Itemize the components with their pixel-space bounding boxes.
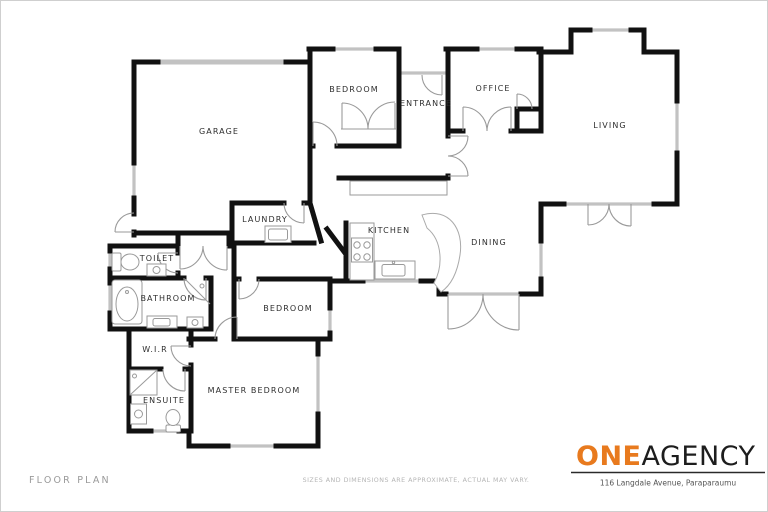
room-label-living: LIVING <box>593 121 626 130</box>
room-label-laundry: LAUNDRY <box>242 215 288 224</box>
footer: FLOOR PLAN SIZES AND DIMENSIONS ARE APPR… <box>29 441 765 488</box>
room-label-toilet: TOILET <box>139 254 175 263</box>
ensuite-vanity-fixture <box>131 404 147 424</box>
disclaimer-text: SIZES AND DIMENSIONS ARE APPROXIMATE, AC… <box>303 477 530 484</box>
laundry-tub-fixture <box>265 226 291 243</box>
bedroom-top-door <box>313 122 337 146</box>
toilet-vanity-fixture <box>147 264 166 276</box>
room-label-bathroom: BATHROOM <box>140 294 195 303</box>
dining-french-doors <box>448 294 519 330</box>
room-label-ensuite: ENSUITE <box>143 396 185 405</box>
front-door <box>422 75 442 95</box>
room-label-dining: DINING <box>471 238 507 247</box>
floor-plan-svg: GARAGE BEDROOM ENTRANCE OFFICE LIVING LA… <box>1 1 767 511</box>
office-double-doors <box>463 107 511 131</box>
entrance-double-doors <box>448 136 468 176</box>
bedroom-mid-door <box>239 279 259 299</box>
living-french-doors <box>588 204 631 226</box>
bedroom-top-robe-doors <box>342 102 395 129</box>
room-label-kitchen: KITCHEN <box>368 226 410 235</box>
room-label-garage: GARAGE <box>199 127 239 136</box>
room-label-wir: W.I.R <box>142 345 168 354</box>
logo-one: ONE <box>576 441 642 472</box>
floor-plan-title: FLOOR PLAN <box>29 475 111 486</box>
room-labels: GARAGE BEDROOM ENTRANCE OFFICE LIVING LA… <box>139 84 627 405</box>
ensuite-shower-fixture <box>130 370 157 395</box>
bathtub-fixture <box>112 280 142 324</box>
kitchen-island-sink-fixture <box>375 261 415 279</box>
hall-closet-bifold-doors <box>180 246 227 270</box>
walls <box>110 30 677 446</box>
floor-plan-page: GARAGE BEDROOM ENTRANCE OFFICE LIVING LA… <box>0 0 768 512</box>
agency-address: 116 Langdale Avenue, Paraparaumu <box>600 479 737 488</box>
room-label-office: OFFICE <box>475 84 510 93</box>
ensuite-toilet-fixture <box>166 410 181 433</box>
wir-door <box>171 346 191 366</box>
room-label-entrance: ENTRANCE <box>400 99 452 108</box>
windows-layer <box>110 30 677 446</box>
stove-fixture <box>352 238 373 262</box>
room-label-bedroom-top: BEDROOM <box>329 85 378 94</box>
room-label-bedroom-mid: BEDROOM <box>263 304 312 313</box>
bathroom-sink-fixture <box>187 317 203 328</box>
ensuite-door <box>163 369 185 391</box>
agency-logo: ONEAGENCY 116 Langdale Avenue, Paraparau… <box>571 441 765 488</box>
bathroom-vanity-fixture <box>147 316 177 328</box>
svg-text:ONEAGENCY: ONEAGENCY <box>576 441 756 472</box>
garage-side-door <box>115 213 134 232</box>
logo-agency: AGENCY <box>642 441 756 472</box>
room-label-master-bedroom: MASTER BEDROOM <box>208 386 301 395</box>
toilet-fixture <box>112 253 139 271</box>
window-bands <box>110 30 677 446</box>
